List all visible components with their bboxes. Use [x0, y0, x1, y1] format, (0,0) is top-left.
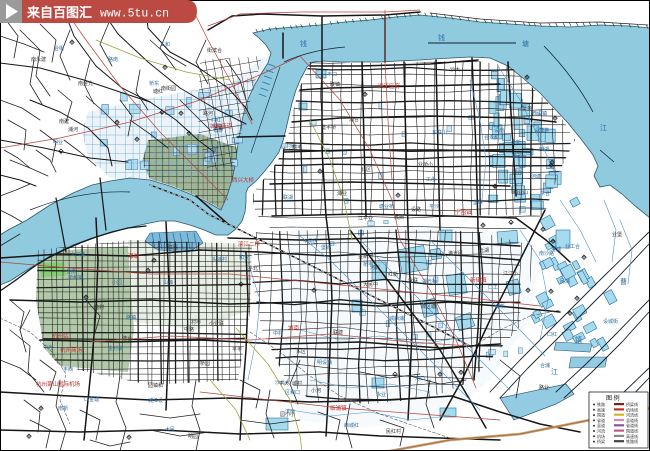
svg-text:工永: 工永	[426, 176, 436, 183]
svg-text:联湖: 联湖	[283, 194, 293, 201]
svg-text:业联: 业联	[408, 277, 418, 284]
svg-text:业工合: 业工合	[565, 243, 580, 250]
svg-text:南永建: 南永建	[31, 56, 46, 63]
svg-text:新街镇: 新街镇	[470, 276, 487, 284]
svg-text:塘业桥: 塘业桥	[379, 203, 394, 210]
svg-text:平大: 平大	[279, 380, 289, 387]
svg-text:明设西: 明设西	[317, 359, 332, 366]
svg-text:南建: 南建	[59, 118, 69, 125]
svg-text:园小小: 园小小	[280, 411, 295, 418]
svg-text:浦新: 浦新	[495, 303, 505, 310]
svg-text:设浦港: 设浦港	[534, 127, 549, 134]
svg-text:口城: 口城	[207, 147, 217, 154]
svg-text:江: 江	[551, 368, 558, 376]
svg-text:省道线: 省道线	[626, 422, 638, 428]
svg-text:浦河: 浦河	[68, 126, 78, 133]
svg-text:街滨合: 街滨合	[207, 47, 222, 54]
svg-text:红新: 红新	[388, 271, 398, 278]
svg-text:东联山: 东联山	[432, 129, 447, 136]
svg-text:国道: 国道	[597, 412, 605, 418]
svg-text:镇: 镇	[575, 335, 582, 344]
svg-text:建合: 建合	[122, 335, 132, 342]
svg-text:桥梁: 桥梁	[597, 438, 605, 444]
svg-text:路镇: 路镇	[126, 314, 136, 321]
svg-text:路南: 路南	[108, 56, 118, 63]
svg-text:桥和镇: 桥和镇	[68, 274, 83, 281]
svg-text:村丰: 村丰	[191, 319, 201, 326]
svg-text:金村湖: 金村湖	[108, 345, 123, 352]
svg-text:临浦镇: 临浦镇	[330, 404, 347, 412]
svg-text:南街园: 南街园	[161, 85, 176, 92]
svg-text:江平业: 江平业	[358, 215, 373, 222]
svg-text:图 例: 图 例	[606, 394, 620, 402]
svg-text:江: 江	[600, 124, 607, 132]
svg-text:塘: 塘	[522, 39, 529, 48]
svg-text:小业联: 小业联	[209, 320, 224, 327]
svg-text:平丰: 平丰	[232, 346, 242, 353]
svg-text:机场: 机场	[597, 433, 605, 439]
svg-text:工和: 工和	[160, 41, 170, 48]
svg-text:南金光: 南金光	[78, 80, 93, 87]
svg-text:设新: 设新	[511, 139, 521, 146]
svg-text:桥东: 桥东	[149, 80, 159, 87]
svg-text:铁路: 铁路	[597, 401, 605, 407]
svg-text:堡丰桥: 堡丰桥	[321, 124, 336, 131]
svg-text:中村: 中村	[273, 330, 283, 337]
svg-text:城红设: 城红设	[148, 397, 163, 404]
svg-text:中路: 中路	[184, 326, 194, 333]
svg-text:口工: 口工	[488, 285, 498, 291]
svg-text:江江小: 江江小	[503, 270, 518, 277]
svg-text:钱: 钱	[300, 39, 307, 48]
svg-text:滨江二桥: 滨江二桥	[238, 240, 261, 248]
svg-text:合浦: 合浦	[540, 362, 550, 369]
svg-text:小园: 小园	[112, 279, 122, 286]
svg-text:湘湖: 湘湖	[128, 252, 140, 260]
svg-text:宁围镇: 宁围镇	[455, 208, 472, 216]
svg-text:小河: 小河	[311, 387, 321, 394]
svg-text:村丰: 村丰	[292, 144, 302, 151]
svg-text:北区: 北区	[361, 166, 371, 173]
svg-text:和业山: 和业山	[513, 189, 528, 196]
svg-text:业堡: 业堡	[612, 231, 622, 238]
svg-text:金新河: 金新河	[358, 253, 373, 260]
svg-text:铁路线: 铁路线	[626, 438, 638, 444]
svg-text:城区塘: 城区塘	[421, 303, 436, 310]
svg-text:民红村: 民红村	[386, 428, 401, 435]
svg-text:县道线: 县道线	[626, 417, 638, 423]
svg-text:省道: 省道	[597, 417, 605, 423]
svg-text:东合: 东合	[540, 190, 550, 197]
svg-text:杭州萧山国际机场: 杭州萧山国际机场	[36, 380, 81, 388]
svg-text:机场线: 机场线	[626, 406, 638, 412]
svg-text:丰民区: 丰民区	[303, 238, 318, 245]
svg-text:河塘: 河塘	[531, 173, 541, 180]
svg-text:来自百图汇: 来自百图汇	[26, 5, 92, 20]
svg-text:光湖: 光湖	[479, 247, 489, 254]
svg-text:钱: 钱	[438, 33, 445, 42]
svg-text:曹: 曹	[620, 277, 627, 286]
svg-text:口红: 口红	[547, 331, 557, 338]
svg-text:浦合: 浦合	[349, 116, 359, 123]
svg-text:桥梁线: 桥梁线	[626, 401, 638, 407]
svg-text:塘村: 塘村	[94, 304, 104, 311]
svg-text:路业: 路业	[539, 384, 549, 391]
svg-text:沙大: 沙大	[450, 66, 460, 73]
svg-text:东区: 东区	[296, 348, 306, 355]
svg-text:设南: 设南	[494, 127, 504, 134]
svg-text:城厢街道: 城厢街道	[210, 122, 233, 130]
svg-text:堡合: 堡合	[512, 169, 522, 176]
svg-text:大民中: 大民中	[363, 281, 378, 288]
svg-text:业桥小: 业桥小	[418, 161, 433, 168]
svg-text:河流线: 河流线	[626, 412, 638, 418]
svg-text:城西: 城西	[394, 214, 404, 221]
svg-text:杭州商场: 杭州商场	[60, 346, 83, 354]
svg-text:金南: 金南	[66, 268, 76, 275]
svg-text:国道线: 国道线	[626, 428, 638, 434]
svg-text:杭州站: 杭州站	[52, 332, 69, 340]
svg-text:www.5tu.cn: www.5tu.cn	[100, 8, 169, 21]
svg-text:村红: 村红	[211, 117, 221, 124]
svg-text:明业: 明业	[53, 139, 63, 146]
svg-text:口金塘: 口金塘	[84, 396, 99, 403]
svg-text:塘红: 塘红	[153, 88, 163, 95]
svg-text:路河: 路河	[203, 110, 213, 117]
svg-text:合街: 合街	[54, 45, 64, 52]
svg-text:中光: 中光	[43, 344, 53, 351]
svg-text:和业: 和业	[239, 254, 249, 261]
svg-text:堡金: 堡金	[522, 105, 532, 112]
svg-text:联镇: 联镇	[330, 81, 340, 88]
svg-text:堡联: 堡联	[473, 199, 483, 206]
svg-text:高速线: 高速线	[626, 433, 638, 439]
svg-text:县道: 县道	[597, 422, 605, 428]
svg-text:联建: 联建	[333, 329, 343, 336]
svg-text:高速: 高速	[597, 406, 605, 412]
svg-text:南新: 南新	[58, 405, 68, 412]
svg-text:平沙: 平沙	[429, 204, 439, 210]
svg-text:镇和: 镇和	[512, 153, 522, 160]
svg-text:河口: 河口	[415, 375, 425, 382]
svg-text:永业: 永业	[376, 391, 386, 398]
svg-text:西城红: 西城红	[344, 422, 359, 429]
svg-text:丰西: 丰西	[63, 366, 73, 373]
svg-text:园镇和: 园镇和	[148, 382, 163, 389]
svg-text:大民: 大民	[165, 426, 175, 433]
svg-text:民浦: 民浦	[560, 278, 570, 285]
svg-text:丰口: 丰口	[327, 71, 337, 78]
svg-text:城南: 城南	[288, 324, 300, 332]
svg-text:设城街: 设城街	[603, 318, 618, 325]
svg-text:头浦村: 头浦村	[212, 256, 227, 263]
svg-text:大口浦: 大口浦	[70, 251, 85, 258]
svg-text:西湖: 西湖	[539, 146, 549, 153]
svg-text:区和口: 区和口	[285, 389, 300, 396]
svg-text:河流: 河流	[597, 428, 605, 434]
svg-text:平北: 平北	[248, 265, 258, 272]
svg-text:山镇: 山镇	[537, 110, 547, 117]
svg-text:合永和: 合永和	[484, 134, 499, 141]
svg-text:城西浦: 城西浦	[389, 315, 404, 322]
svg-text:港浦: 港浦	[551, 246, 561, 253]
svg-text:滨江区府: 滨江区府	[378, 82, 401, 90]
svg-text:港光民: 港光民	[448, 250, 463, 257]
svg-text:桥园: 桥园	[200, 360, 210, 367]
svg-text:设路: 设路	[411, 206, 421, 213]
svg-text:明园: 明园	[188, 434, 198, 440]
svg-text:山浦: 山浦	[163, 279, 173, 286]
svg-text:湖光桥: 湖光桥	[422, 278, 437, 285]
svg-text:堡城: 堡城	[321, 244, 331, 251]
svg-text:桥丰: 桥丰	[363, 261, 373, 268]
svg-text:浦业: 浦业	[337, 190, 347, 197]
svg-text:城村: 城村	[292, 380, 302, 387]
svg-text:西兴大桥: 西兴大桥	[232, 176, 255, 184]
svg-text:江民: 江民	[168, 244, 178, 251]
